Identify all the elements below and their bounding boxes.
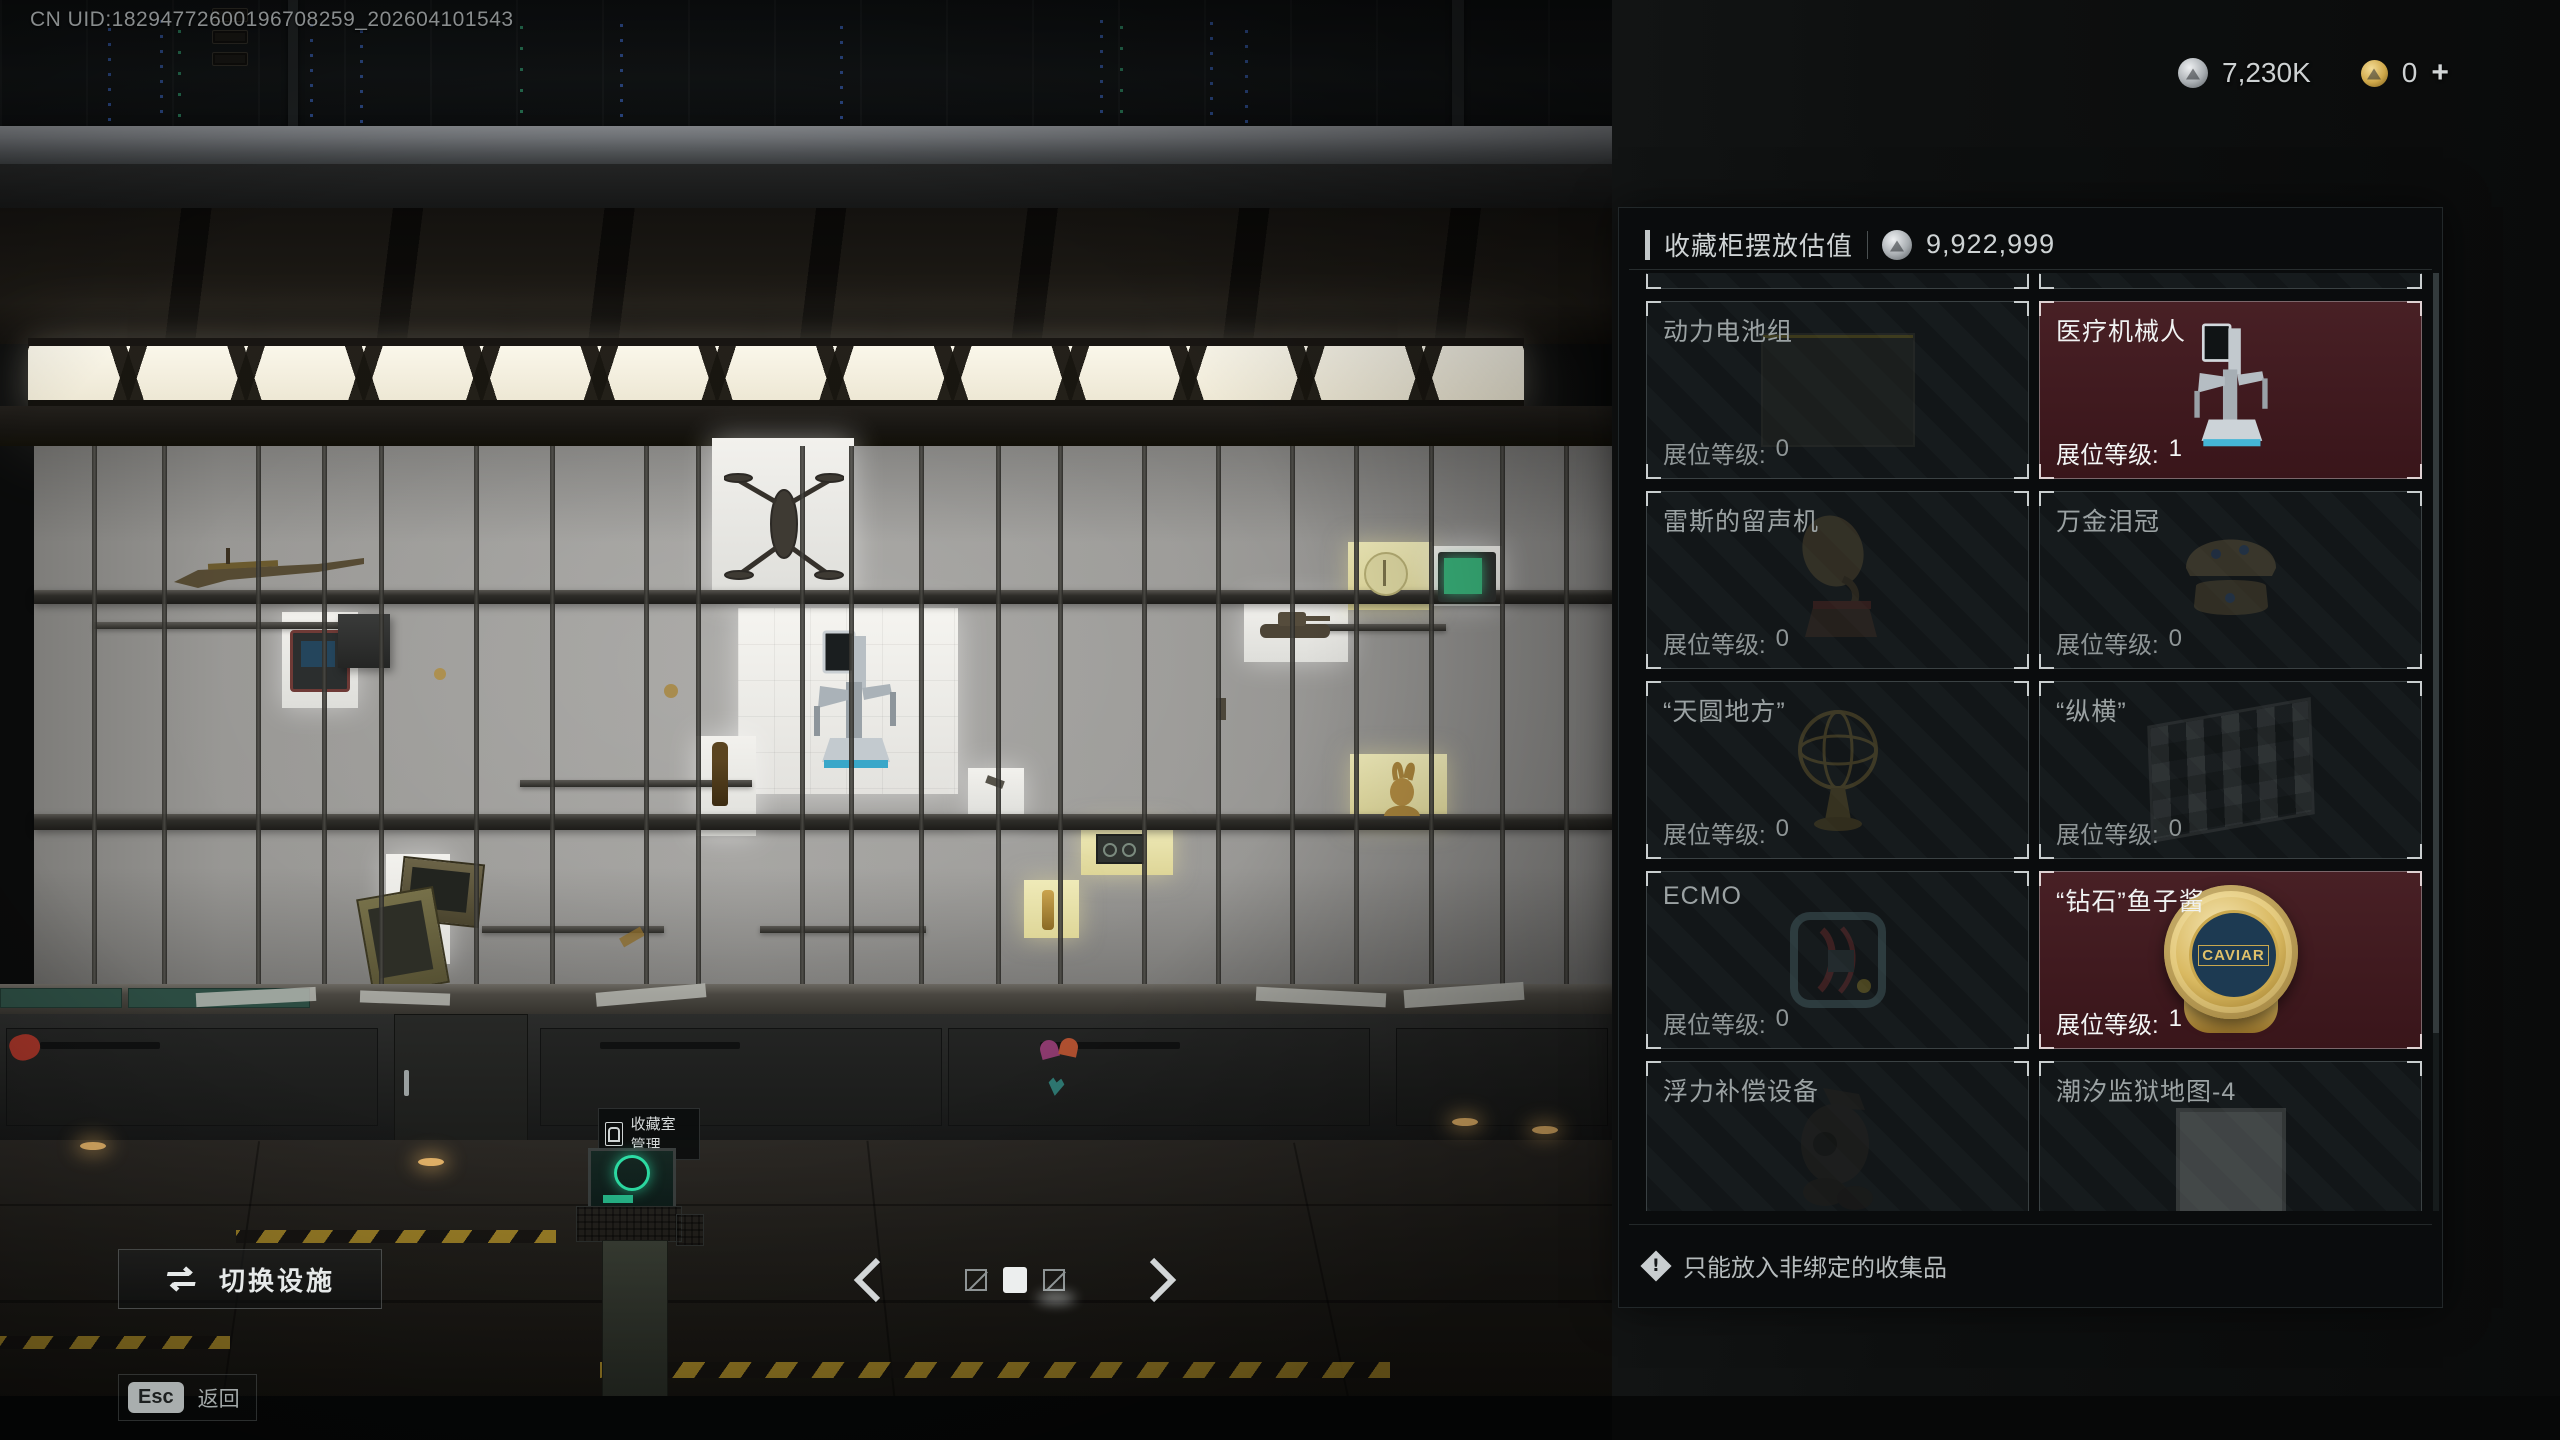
drone-display xyxy=(724,464,844,586)
shelf-rod xyxy=(1290,446,1295,986)
shelf-rod xyxy=(379,446,384,986)
display-case-pager xyxy=(850,1250,1180,1310)
shelf-rod xyxy=(696,446,701,986)
notice-text: 只能放入非绑定的收集品 xyxy=(1683,1248,1947,1283)
gold-amount: 0 xyxy=(2402,57,2418,89)
collectible-card[interactable]: CAVIAR “钻石”鱼子酱 展位等级:1 xyxy=(2039,871,2422,1049)
back-label: 返回 xyxy=(198,1383,240,1413)
collectible-card[interactable]: ECMO 展位等级:0 xyxy=(1646,871,2029,1049)
panel-header: 收藏柜摆放估值 9,922,999 xyxy=(1645,226,2055,263)
collectible-card[interactable]: 潮汐监狱地图-4 xyxy=(2039,1061,2422,1211)
header-divider xyxy=(1629,269,2432,270)
cutting-mat xyxy=(0,988,122,1008)
shelf-rod xyxy=(1564,446,1569,986)
uid-watermark: CN UID:18294772600196708259_202604101543 xyxy=(30,8,514,32)
silver-coin-icon xyxy=(1882,230,1912,260)
terminal-pedestal xyxy=(602,1240,668,1400)
collectible-card[interactable]: 浮力补偿设备 xyxy=(1646,1061,2029,1211)
battery-pack-image xyxy=(1761,333,1915,447)
panel-title: 收藏柜摆放估值 xyxy=(1664,226,1853,263)
shelf-rod xyxy=(1354,446,1359,986)
shelf-rod xyxy=(550,446,555,986)
rifle-display xyxy=(168,542,368,598)
terminal-keyboard xyxy=(576,1206,682,1242)
shelf-rod xyxy=(256,446,261,986)
warning-diamond-icon: ! xyxy=(1640,1250,1671,1281)
collectible-card[interactable]: 动力电池组 展位等级:0 xyxy=(1646,301,2029,479)
pendulum-sign-display xyxy=(1364,552,1408,596)
gold-figurine-display xyxy=(1042,890,1054,930)
currency-bar: 7,230K 0 + xyxy=(2178,56,2449,90)
robot-display xyxy=(790,630,920,780)
hazard-stripe xyxy=(0,1336,230,1349)
shelf-rod xyxy=(919,446,924,986)
game-screen: 收藏室管理 CN UID:18294772600196708259_202604… xyxy=(0,0,2560,1440)
page-indicators xyxy=(965,1267,1065,1293)
header-accent-bar xyxy=(1645,230,1650,260)
floor-light xyxy=(1532,1126,1558,1134)
rabbit-statue-display xyxy=(1374,758,1430,824)
header-separator xyxy=(1867,231,1868,259)
restriction-notice: ! 只能放入非绑定的收集品 xyxy=(1645,1248,1947,1283)
total-value: 9,922,999 xyxy=(1926,229,2055,260)
shelf-rod xyxy=(1142,446,1147,986)
bottle-display xyxy=(712,742,728,806)
prison-map-image xyxy=(2176,1108,2286,1211)
page-dot-2-active[interactable] xyxy=(1003,1267,1027,1293)
bottom-dark-strip xyxy=(0,1396,2560,1440)
chevron-right-icon[interactable] xyxy=(1146,1256,1180,1304)
scrollbar-track[interactable] xyxy=(2433,273,2439,1211)
switch-facility-button[interactable]: 切换设施 xyxy=(118,1249,382,1309)
sub-shelf xyxy=(94,622,342,629)
page-dot-1[interactable] xyxy=(965,1269,987,1291)
item-grid-viewport: 动力电池组 展位等级:0 医疗机械人 展位等级:1 xyxy=(1641,273,2431,1211)
collectible-card-partial[interactable] xyxy=(2039,273,2422,289)
shelf-rod xyxy=(322,446,327,986)
display-wall xyxy=(34,446,1612,986)
collection-cabinet-panel: 收藏柜摆放估值 9,922,999 动力电池组 展位等级:0 xyxy=(1618,207,2443,1308)
shelf-rod xyxy=(800,446,805,986)
terminal-keypad xyxy=(676,1214,704,1246)
esc-keycap: Esc xyxy=(128,1382,184,1413)
terminal-screen xyxy=(588,1148,676,1207)
shelf-rod xyxy=(1500,446,1505,986)
collectible-card[interactable]: “纵横” 展位等级:0 xyxy=(2039,681,2422,859)
shelf-rod xyxy=(644,446,649,986)
page-dot-3[interactable] xyxy=(1043,1269,1065,1291)
swap-arrows-icon xyxy=(165,1266,203,1292)
shelf-rod xyxy=(1429,446,1434,986)
collectible-card-partial[interactable] xyxy=(1646,273,2029,289)
esc-back-control[interactable]: Esc 返回 xyxy=(118,1374,257,1421)
floor-light xyxy=(1452,1118,1478,1126)
add-currency-button[interactable]: + xyxy=(2431,56,2449,90)
chevron-left-icon[interactable] xyxy=(850,1256,884,1304)
shelf-rod xyxy=(92,446,97,986)
footer-divider xyxy=(1629,1224,2432,1225)
scrollbar-thumb[interactable] xyxy=(2433,273,2439,1033)
caviar-label-text: CAVIAR xyxy=(2198,945,2268,966)
armillary-sphere-image xyxy=(1773,700,1903,840)
floor-light xyxy=(80,1142,106,1150)
cabinet-icon xyxy=(605,1122,623,1146)
base-cabinets xyxy=(0,1014,1612,1140)
collectible-card[interactable]: 万金泪冠 展位等级:0 xyxy=(2039,491,2422,669)
silver-coin-icon xyxy=(2178,58,2208,88)
cassette-display xyxy=(1096,834,1144,864)
ceiling xyxy=(0,208,1612,344)
collectible-card[interactable]: “天圆地方” 展位等级:0 xyxy=(1646,681,2029,859)
shelf-rod xyxy=(162,446,167,986)
ceiling-light-truss xyxy=(28,342,1524,406)
shelf-rod xyxy=(1058,446,1063,986)
shelf-rod xyxy=(1216,446,1221,986)
collectible-card[interactable]: 医疗机械人 展位等级:1 xyxy=(2039,301,2422,479)
hazard-stripe xyxy=(600,1362,1390,1378)
tank-model-display xyxy=(1252,604,1338,646)
medical-robot-image xyxy=(2171,323,2291,457)
hazard-stripe xyxy=(236,1230,556,1243)
switch-facility-label: 切换设施 xyxy=(219,1261,335,1298)
trinket-display xyxy=(664,684,678,698)
floor-light xyxy=(418,1158,444,1166)
sub-shelf xyxy=(760,926,926,933)
shelf-rod xyxy=(849,446,854,986)
open-case-lid-display xyxy=(356,886,450,996)
collectible-card[interactable]: 雷斯的留声机 展位等级:0 xyxy=(1646,491,2029,669)
tv-display xyxy=(1438,552,1496,602)
gold-coin-icon xyxy=(2361,60,2388,87)
locker-column xyxy=(394,1014,528,1142)
shelf-rod xyxy=(474,446,479,986)
silver-amount: 7,230K xyxy=(2222,57,2311,89)
terminal-station[interactable]: 收藏室管理 xyxy=(570,1108,700,1398)
shelf-rod xyxy=(996,446,1001,986)
trinket-display xyxy=(434,668,446,680)
